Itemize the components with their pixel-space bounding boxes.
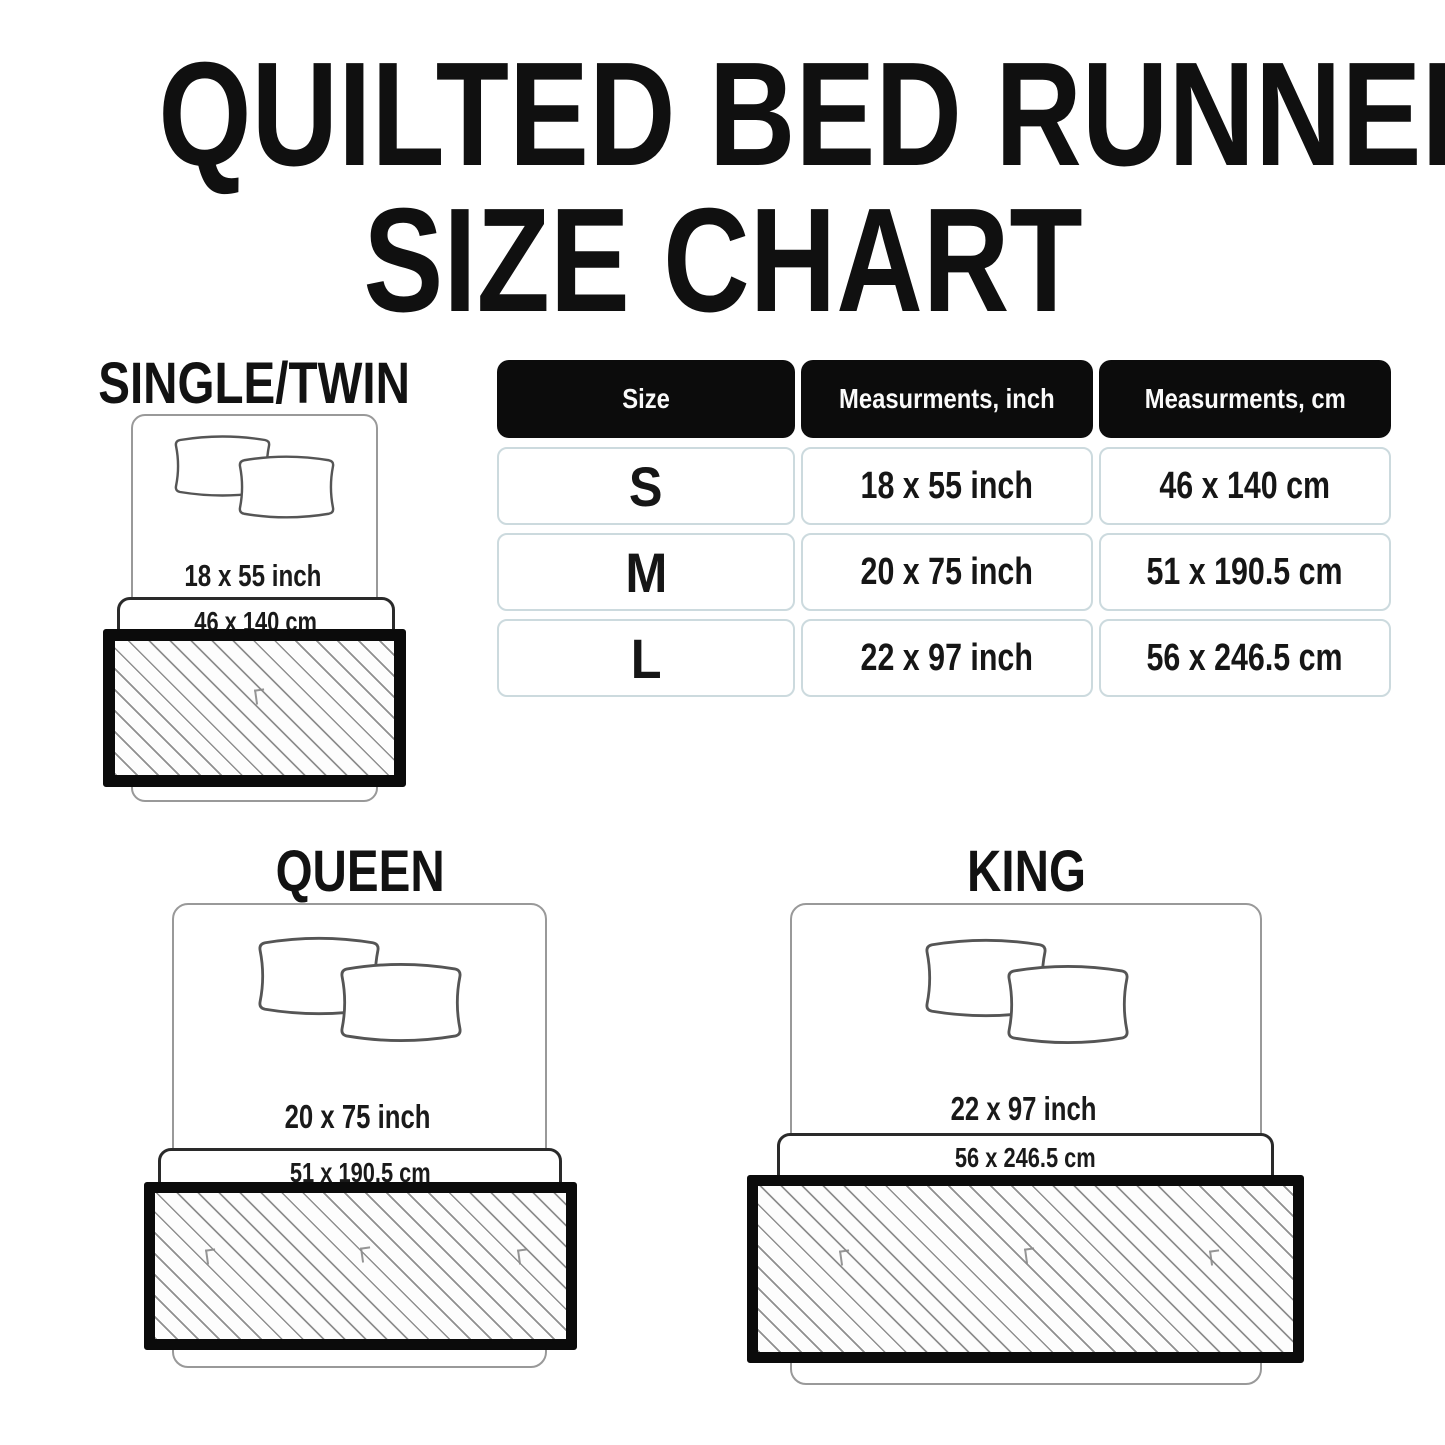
stitch-mark-icon — [517, 1248, 529, 1264]
stitch-mark-icon — [205, 1248, 217, 1264]
table-row-m-cm: 51 x 190.5 cm — [1099, 533, 1391, 611]
size-table: Size Measurments, inch Measurments, cm S… — [497, 360, 1391, 697]
table-row-l-size: L — [497, 619, 795, 697]
queen-inch-label: 20 x 75 inch — [172, 1098, 543, 1136]
stitch-mark-icon — [1209, 1249, 1221, 1265]
table-row-l-inch: 22 x 97 inch — [801, 619, 1093, 697]
king-bed-runner — [747, 1175, 1304, 1363]
pillow-icon — [236, 450, 337, 524]
stitch-mark-icon — [1024, 1247, 1036, 1263]
single-bed-runner — [103, 629, 406, 787]
table-row-s-cm: 46 x 140 cm — [1099, 447, 1391, 525]
table-row-s-inch: 18 x 55 inch — [801, 447, 1093, 525]
page-title: QUILTED BED RUNNER SIZE CHART — [0, 42, 1445, 334]
king-label: KING — [826, 838, 1226, 905]
page-title-line2: SIZE CHART — [0, 188, 1445, 334]
table-row-m-inch: 20 x 75 inch — [801, 533, 1093, 611]
single-inch-label: 18 x 55 inch — [131, 558, 374, 594]
table-row-s-size: S — [497, 447, 795, 525]
table-header-inch: Measurments, inch — [801, 360, 1093, 438]
stitch-mark-icon — [839, 1249, 851, 1265]
single-twin-label: SINGLE/TWIN — [54, 350, 454, 417]
table-row-l-cm: 56 x 246.5 cm — [1099, 619, 1391, 697]
table-header-cm: Measurments, cm — [1099, 360, 1391, 438]
size-chart-page: QUILTED BED RUNNER SIZE CHART Size Measu… — [0, 0, 1445, 1445]
queen-label: QUEEN — [160, 838, 560, 905]
queen-bed-runner — [144, 1182, 577, 1350]
table-row-m-size: M — [497, 533, 795, 611]
pillow-icon — [1004, 958, 1132, 1051]
stitch-mark-icon — [360, 1246, 372, 1262]
pillow-icon — [337, 956, 465, 1049]
page-title-line1: QUILTED BED RUNNER — [0, 42, 1445, 188]
table-header-size: Size — [497, 360, 795, 438]
king-inch-label: 22 x 97 inch — [790, 1090, 1258, 1128]
stitch-mark-icon — [254, 688, 266, 704]
king-cm-label: 56 x 246.5 cm — [780, 1142, 1271, 1174]
